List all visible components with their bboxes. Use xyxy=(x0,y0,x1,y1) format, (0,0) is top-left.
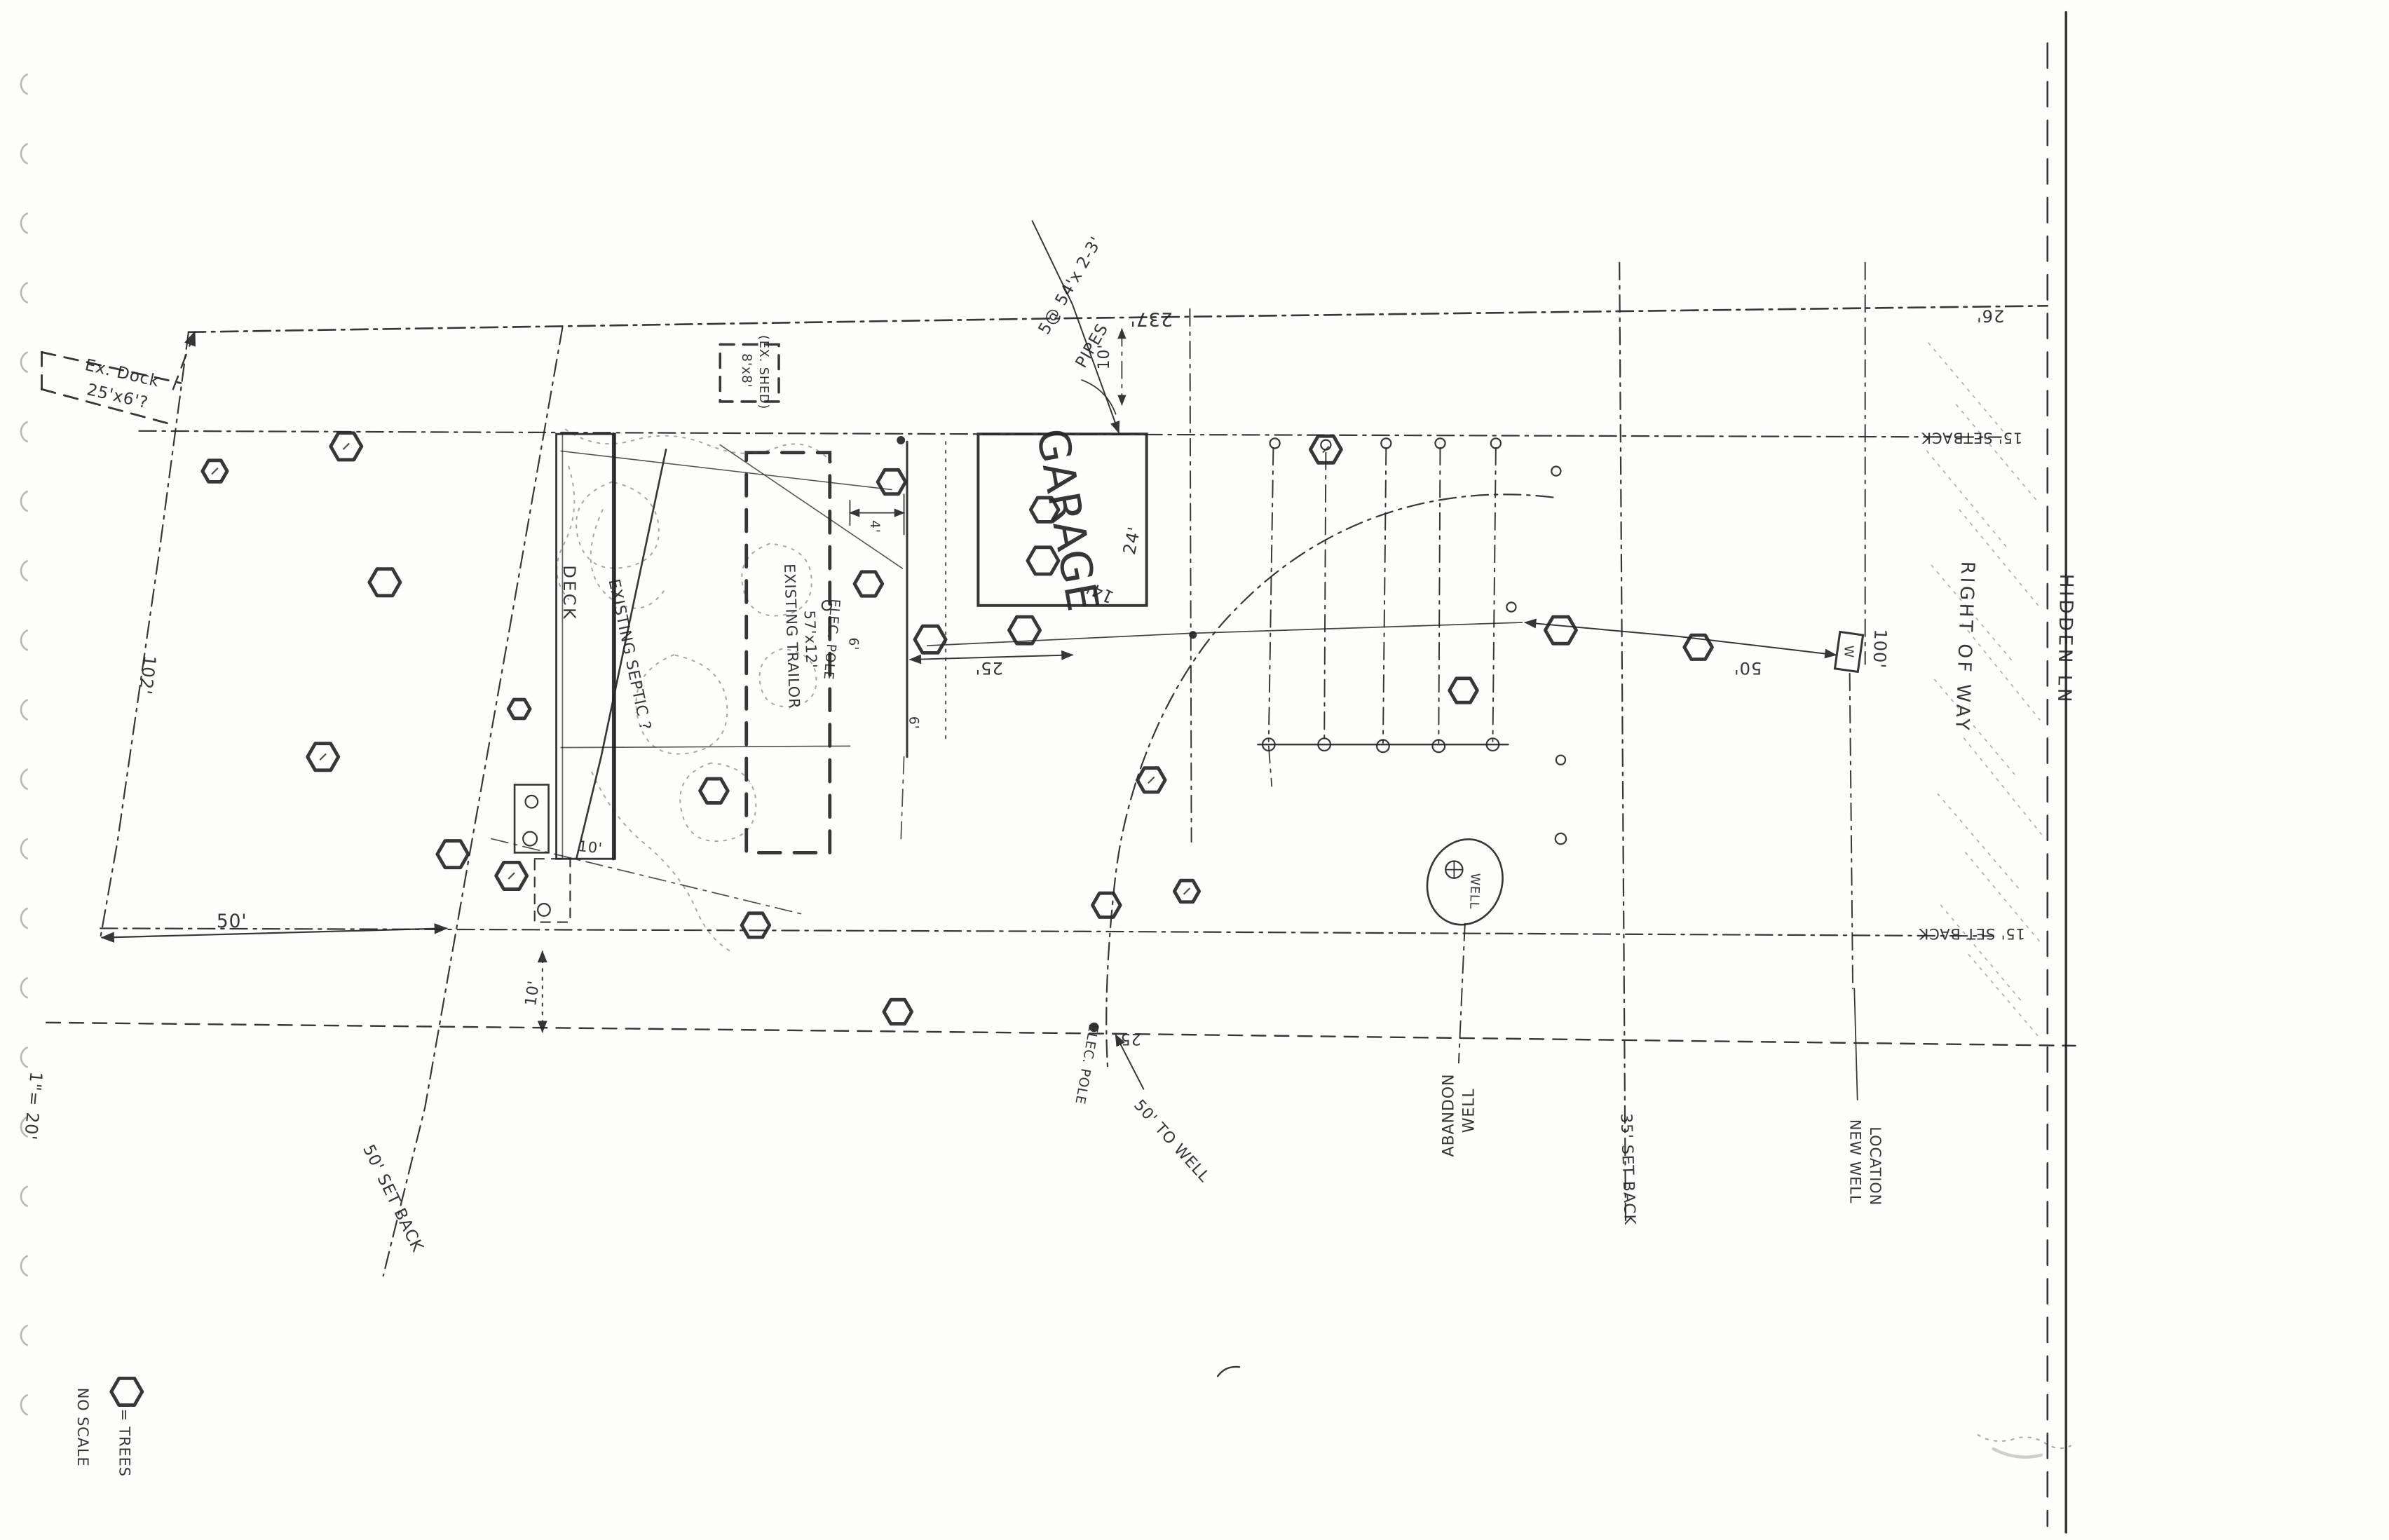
leach-pipe xyxy=(1438,448,1440,743)
line-point xyxy=(1190,632,1196,638)
setback15-top-label: 15' SETBACK xyxy=(1921,430,2022,447)
row-hatch-line xyxy=(1938,794,2020,890)
to-well-label: 50' TO WELL xyxy=(1130,1096,1213,1185)
tree-mark xyxy=(1184,888,1190,894)
tree-icon xyxy=(1450,679,1478,702)
annotations-layer: Ex. Dock25'x6'?5@ 54'x 2-3'PIPES237'10'2… xyxy=(20,233,2077,1477)
west-property-line xyxy=(100,332,189,938)
tree-mark xyxy=(508,873,515,879)
paper-punch-mark xyxy=(21,1186,28,1206)
dim-24: 24' xyxy=(1119,524,1145,556)
dim-10-bottomleft: 10' xyxy=(522,979,543,1007)
service-wire-1 xyxy=(561,451,892,489)
tree-mark xyxy=(320,754,326,760)
house-right-ext xyxy=(901,757,904,842)
setback35-line xyxy=(1619,263,1626,1224)
trailer-label-1: EXISTING TRAILOR xyxy=(781,564,803,709)
paper-punch-mark xyxy=(21,561,28,581)
dim-50-newwell: 50' xyxy=(1734,658,1762,679)
paper-punch-mark xyxy=(21,144,28,164)
new-well-label-2: LOCATION xyxy=(1867,1126,1884,1206)
dim-25-mid: 25' xyxy=(975,658,1003,679)
well-label: WELL xyxy=(1466,873,1482,909)
abandon-well-label-2: WELL xyxy=(1460,1089,1478,1133)
tree-icon xyxy=(1009,617,1040,643)
waterfront-setback-line xyxy=(383,327,563,1276)
legend-trees-label: = TREES xyxy=(116,1408,132,1476)
tree-icon xyxy=(884,1000,912,1023)
under-deck-diagonal xyxy=(491,839,803,915)
paper-punch-mark xyxy=(21,74,28,95)
setback50-label: 50' SET BACK xyxy=(359,1142,427,1255)
tree-icon xyxy=(742,913,770,937)
row-hatch-line xyxy=(1941,905,2022,1001)
setback15-bottom-label: 15' SET BACK xyxy=(1918,925,2025,942)
row-hatch-line xyxy=(1928,343,2012,442)
survey-marker xyxy=(1556,756,1565,765)
tree-icon xyxy=(437,841,468,868)
dim-10-top: 10' xyxy=(1096,344,1113,370)
setback35-label: 35' SET BACK xyxy=(1617,1113,1638,1225)
small-dashed-box xyxy=(535,859,571,922)
paper-punch-mark xyxy=(21,1256,28,1276)
tree-icon xyxy=(508,700,530,718)
stray-check-mark xyxy=(1218,1367,1239,1376)
dim-6-mid: 6' xyxy=(906,716,920,730)
south-property-line xyxy=(46,1023,2075,1046)
survey-marker xyxy=(1556,833,1566,844)
dim-50-left-line xyxy=(102,928,447,937)
tree-mark xyxy=(343,443,349,449)
dim-100: 100' xyxy=(1870,629,1891,669)
well-oval xyxy=(1416,829,1513,934)
mid-vertical-line xyxy=(1190,309,1191,842)
contour-squiggle xyxy=(742,544,811,616)
paper-punch-mark xyxy=(21,908,28,929)
tree-icon xyxy=(1093,893,1121,917)
tree-icon xyxy=(915,626,946,653)
tree-icon xyxy=(878,470,906,493)
tree-icon xyxy=(855,572,883,596)
leach-pipe xyxy=(1269,448,1274,742)
row-hatch-line xyxy=(1968,955,2039,1038)
site-plan-sheet: Ex. Dock25'x6'?5@ 54'x 2-3'PIPES237'10'2… xyxy=(0,0,2389,1540)
paper-punch-mark xyxy=(21,700,28,720)
hidden-ln-label: HIDDEN LN xyxy=(2053,573,2077,705)
new-well-lower-line xyxy=(1850,674,1853,989)
legend-noscale-label: NO SCALE xyxy=(74,1388,91,1467)
paper-punch-mark xyxy=(21,769,28,789)
survey-marker xyxy=(1551,466,1560,475)
linework-layer xyxy=(42,13,2076,1532)
contour-squiggle xyxy=(576,482,659,568)
scale-note: 1"= 20' xyxy=(20,1071,46,1141)
corner-scribble xyxy=(1994,1449,2041,1457)
paper-punch-mark xyxy=(21,1395,28,1415)
deck-outline xyxy=(557,434,615,859)
paper-punch-mark xyxy=(21,1047,28,1068)
dim-6-house: 6' xyxy=(845,637,860,650)
row-hatch-line xyxy=(1964,738,2041,834)
survey-marker xyxy=(1506,602,1516,611)
pipe-top-marker xyxy=(1381,438,1391,448)
pipe-top-marker xyxy=(1491,438,1501,448)
pipe-top-marker xyxy=(1270,438,1280,448)
elec-pole-bottom-label: ELEC. POLE xyxy=(1072,1023,1101,1105)
boundary-point xyxy=(897,437,904,444)
dim-237: 237' xyxy=(1130,308,1173,329)
tree-mark xyxy=(1148,777,1155,783)
paper-punch-mark xyxy=(21,491,28,512)
trailer-label-2: 57'x12' xyxy=(801,610,820,669)
dim-4: 4' xyxy=(867,520,882,533)
pipe-top-marker xyxy=(1435,438,1445,448)
paper-punch-mark xyxy=(21,839,28,859)
north-property-line xyxy=(189,306,2048,332)
elec-pole-house-label: ELEC. POLE xyxy=(820,599,842,681)
new-well-leader xyxy=(1854,988,1857,1100)
symbols-layer xyxy=(111,433,1713,1405)
dock-leader xyxy=(173,332,195,390)
dim-50-left: 50' xyxy=(217,911,247,932)
leach-pipe xyxy=(1324,453,1326,742)
contour-squiggle xyxy=(591,510,665,608)
deck-post xyxy=(523,832,537,846)
paper-punch-mark xyxy=(21,630,28,650)
arc-50-to-well xyxy=(1106,494,1553,1072)
pipe-top-marker xyxy=(1321,440,1330,450)
deck-label: DECK xyxy=(559,565,580,621)
shed-label-2: (EX. SHED) xyxy=(756,335,770,409)
deck-post xyxy=(525,796,538,808)
dim-26: 26' xyxy=(1976,306,2004,327)
dim-10-deck: 10' xyxy=(578,838,604,857)
paper-punch-mark xyxy=(21,352,28,372)
contours-layer xyxy=(21,74,2071,1448)
abandon-well-leader xyxy=(1459,924,1465,1063)
row-hatch-line xyxy=(1935,680,2018,779)
tree-icon xyxy=(111,1378,142,1405)
row-hatch-line xyxy=(1956,404,2037,500)
abandon-well-label-1: ABANDON xyxy=(1441,1074,1458,1157)
shed-label-1: 8'x8' xyxy=(739,353,754,388)
corner-scribble xyxy=(1978,1435,2071,1448)
site-plan-drawing: Ex. Dock25'x6'?5@ 54'x 2-3'PIPES237'10'2… xyxy=(0,0,2389,1540)
tree-icon xyxy=(700,779,728,803)
new-well-box-label: W xyxy=(1841,646,1855,658)
leach-bottom-ext xyxy=(1269,746,1272,786)
leach-pipe xyxy=(1383,448,1386,743)
new-well-label-1: NEW WELL xyxy=(1846,1119,1863,1204)
tree-icon xyxy=(369,569,400,596)
contour-squiggle xyxy=(636,655,727,754)
paper-punch-mark xyxy=(21,213,28,233)
paper-punch-mark xyxy=(21,282,28,303)
tree-mark xyxy=(212,468,218,475)
dim-25-bottom: 25' xyxy=(1115,1030,1141,1047)
paper-punch-mark xyxy=(21,978,28,998)
dim-102: 102' xyxy=(135,654,161,696)
right-of-way-label: RIGHT OF WAY xyxy=(1951,561,1979,733)
row-hatch-line xyxy=(1927,451,2009,550)
leach-pipe xyxy=(1492,448,1495,742)
paper-punch-mark xyxy=(21,1326,28,1346)
shed-post xyxy=(538,904,550,916)
tree-icon xyxy=(1545,617,1576,643)
paper-punch-mark xyxy=(21,422,28,442)
